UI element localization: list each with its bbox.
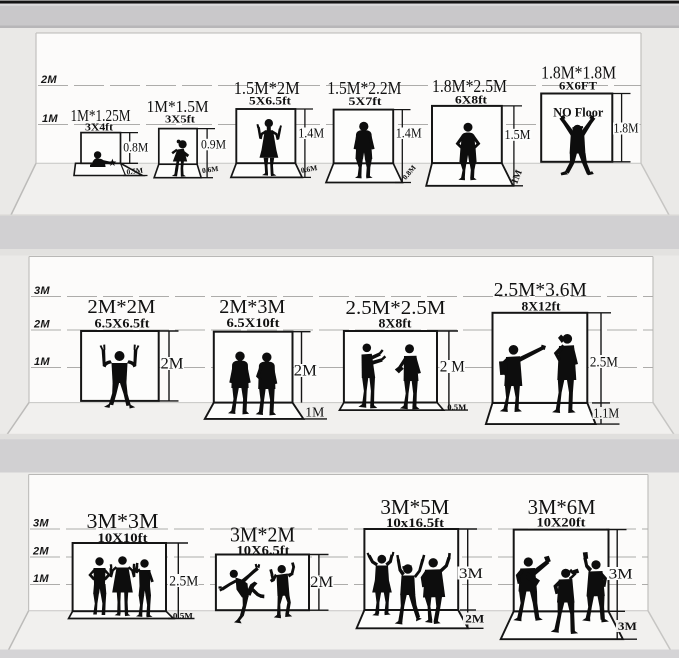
svg-text:0.5M: 0.5M	[447, 402, 466, 412]
svg-text:5X6.5ft: 5X6.5ft	[249, 96, 291, 108]
svg-text:3M*3M: 3M*3M	[87, 509, 159, 533]
svg-text:2M: 2M	[465, 614, 484, 626]
svg-text:8X12ft: 8X12ft	[522, 299, 562, 314]
svg-text:0.5M: 0.5M	[126, 166, 143, 177]
svg-text:10x16.5ft: 10x16.5ft	[386, 516, 445, 530]
svg-text:0.8M: 0.8M	[123, 139, 148, 154]
svg-text:1M: 1M	[33, 573, 49, 585]
svg-text:2M: 2M	[33, 319, 50, 331]
svg-text:1M: 1M	[34, 356, 50, 368]
svg-text:3M: 3M	[459, 566, 483, 582]
svg-text:1.5M: 1.5M	[505, 127, 531, 142]
svg-text:1.1M: 1.1M	[593, 406, 619, 421]
svg-text:0.5M: 0.5M	[173, 611, 193, 621]
svg-text:1.8M: 1.8M	[614, 121, 639, 136]
svg-text:0.9M: 0.9M	[201, 137, 226, 152]
svg-text:6.5X10ft: 6.5X10ft	[227, 315, 281, 330]
svg-text:10X20ft: 10X20ft	[537, 516, 587, 530]
svg-text:3M: 3M	[33, 518, 49, 530]
svg-text:2.5M: 2.5M	[169, 574, 198, 590]
svg-text:1.5M*2.2M: 1.5M*2.2M	[327, 78, 401, 98]
svg-text:2M: 2M	[40, 74, 57, 86]
svg-text:3X4ft: 3X4ft	[85, 122, 113, 134]
svg-text:8X8ft: 8X8ft	[379, 316, 413, 331]
svg-text:3M: 3M	[609, 567, 633, 583]
svg-text:2M: 2M	[32, 546, 49, 558]
svg-text:2.5M: 2.5M	[590, 355, 618, 371]
svg-text:2M: 2M	[161, 356, 184, 373]
svg-text:1M: 1M	[305, 405, 324, 420]
svg-text:NO Floor: NO Floor	[553, 106, 603, 120]
svg-text:2M: 2M	[294, 363, 317, 380]
svg-text:1.4M: 1.4M	[396, 125, 422, 140]
svg-text:2M: 2M	[310, 574, 333, 591]
svg-text:6X8ft: 6X8ft	[455, 95, 487, 107]
svg-text:1.8M*2.5M: 1.8M*2.5M	[432, 76, 507, 96]
svg-text:5X7ft: 5X7ft	[349, 96, 382, 108]
svg-text:2 M: 2 M	[440, 359, 465, 376]
svg-text:3M: 3M	[34, 285, 50, 297]
svg-text:3M: 3M	[618, 621, 637, 633]
svg-text:6X6FT: 6X6FT	[559, 81, 597, 93]
svg-text:1.4M: 1.4M	[298, 125, 324, 140]
svg-text:3X5ft: 3X5ft	[165, 113, 195, 125]
svg-text:6.5X6.5ft: 6.5X6.5ft	[95, 316, 151, 331]
svg-text:1.8M*1.8M: 1.8M*1.8M	[541, 63, 616, 83]
svg-text:1M: 1M	[42, 113, 58, 125]
